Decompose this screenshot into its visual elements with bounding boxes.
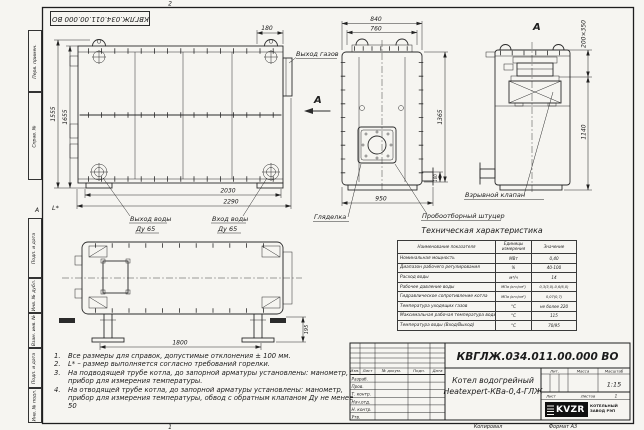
sheets-label: Листов: [580, 394, 596, 399]
sight-glass-label: Гляделка: [313, 164, 361, 222]
scale-label: Масштаб: [605, 369, 624, 374]
sheet-label: Лист: [545, 394, 557, 399]
spec-header-value: Значение: [532, 241, 577, 254]
dim-1365: 1365: [437, 109, 444, 124]
dim-height-inner: 1655: [62, 109, 69, 124]
lit-label: Лит.: [549, 369, 559, 374]
lifting-lug: [93, 40, 278, 47]
dim-180: 180: [261, 25, 273, 32]
zone-mark-top: 2: [168, 1, 172, 8]
dim-2290: 2290: [223, 199, 238, 206]
burner-plate: [358, 127, 396, 163]
spec-row: Номинальная мощностьМВт0,40: [398, 254, 577, 264]
spec-table: Наименование показателя Единицы измерени…: [397, 240, 577, 331]
view-arrow-letter: А: [313, 95, 322, 106]
dim-2030: 2030: [220, 188, 235, 195]
svg-text:Ду 65: Ду 65: [217, 225, 237, 233]
doc-number: КВГЛЖ.034.011.00.000 ВО: [457, 351, 619, 363]
explosion-valve-label: Взрывной клапан: [464, 92, 553, 200]
logo-text: KVZR: [556, 405, 585, 415]
notes: 1.Все размеры для справок, допустимые от…: [54, 352, 354, 411]
kvzr-logo: KVZR: [545, 402, 588, 417]
zone-mark-bottom: 1: [168, 424, 172, 430]
spec-table-title: Техническая характеристика: [397, 226, 567, 235]
margin-stamp-vzam-inv: Взам. инв. №: [28, 313, 42, 348]
role-nkontr: Н. контр.: [352, 407, 372, 412]
dim-200x350: 200×350: [581, 20, 588, 48]
corner-gussets: [89, 246, 280, 308]
margin-stamp-podp-data-2: Подп. и дата: [28, 348, 42, 388]
sampling-stub: [422, 168, 433, 185]
col-list: Лист: [362, 368, 374, 373]
dim-1800: 1800: [172, 340, 187, 347]
plan-view: 1800 195: [59, 242, 310, 350]
explosion-valve: [504, 57, 561, 106]
copied-label: Копировал: [474, 424, 503, 430]
spec-row: Расход водым³/ч14: [398, 273, 577, 283]
drawing-sheet: 2 1 А: [0, 0, 644, 430]
col-docnum: № докум.: [381, 368, 401, 373]
svg-text:Вход воды: Вход воды: [212, 215, 248, 223]
spec-row: Максимальная рабочая температура воды°С1…: [398, 311, 577, 321]
corner-doc-number: КВГЛЖ.034.011.00.000 ВО: [50, 11, 150, 26]
dim-195: 195: [304, 325, 310, 335]
product-name-line2: Heatexpert-КВа-0,4-ГЛЖ: [443, 387, 543, 396]
flange-marks: [90, 50, 280, 181]
water-inlet-label: Вход воды Ду 65: [211, 215, 248, 233]
company-line2: ЗАВОД РЭП: [590, 408, 630, 413]
note-item: 3.На подводящей трубе котла, до запорной…: [54, 369, 354, 386]
logo-stripes-icon: [547, 404, 554, 415]
hatch-door: [101, 259, 130, 294]
note-item: 1.Все размеры для справок, допустимые от…: [54, 352, 354, 360]
svg-text:Ду 65: Ду 65: [135, 225, 155, 233]
dim-760: 760: [370, 26, 382, 33]
burner-dim-label: L*: [52, 204, 60, 212]
col-podp: Подп.: [413, 368, 425, 373]
col-data: Дата: [431, 368, 443, 373]
rear-view-letter: А: [532, 22, 541, 33]
dim-100: 100: [433, 174, 438, 182]
spec-header-unit: Единицы измерения: [496, 241, 532, 254]
svg-text:Гляделка: Гляделка: [314, 213, 346, 221]
role-nachotd: Нач.отд.: [352, 399, 371, 404]
margin-stamp-podp-data-1: Подп. и дата: [28, 218, 42, 278]
format-label: Формат А3: [549, 424, 577, 430]
sheets-value: 1: [615, 394, 618, 399]
margin-stamp-inv-podl: Инв. № подл.: [28, 388, 42, 423]
spec-row: Температура уходящих газов°Сне более 220: [398, 301, 577, 311]
rear-pipe-stub: [480, 163, 495, 184]
spec-header-name: Наименование показателя: [398, 241, 496, 254]
company-name: КОТЕЛЬНЫЙ ЗАВОД РЭП: [590, 403, 630, 413]
zone-mark-left: А: [34, 207, 39, 214]
dim-height-outer: 1555: [50, 106, 57, 121]
mass-label: Масса: [577, 369, 590, 374]
svg-text:Выход воды: Выход воды: [130, 215, 171, 223]
spec-row: Температура воды (Вход/Выход)°С70/95: [398, 321, 577, 331]
spec-row: Диапазон рабочего регулирования%40-100: [398, 263, 577, 273]
spec-row: Рабочее давление водыМПа (кгс/см²)0,3(3,…: [398, 282, 577, 292]
dim-950: 950: [375, 196, 387, 203]
margin-stamp-perv-primen: Перв. примен.: [28, 30, 42, 92]
note-item: 2.L* – размер выполняется согласно требо…: [54, 360, 354, 368]
rear-view: А 200×350: [464, 20, 592, 200]
spec-row: Гидравлическое сопротивление котлаМПа (к…: [398, 292, 577, 302]
margin-stamp-inv-dubl: Инв. № дубл.: [28, 278, 42, 313]
role-utv: Утв.: [352, 415, 361, 420]
view-direction-arrow: А: [304, 95, 330, 114]
gas-outlet-stub: [283, 58, 292, 96]
supports: [59, 314, 286, 342]
svg-text:Пробоотборный штуцер: Пробоотборный штуцер: [422, 212, 505, 220]
title-block: Изм. Лист № докум. Подп. Дата Разраб. Пр…: [350, 343, 630, 430]
dim-1140: 1140: [581, 124, 588, 139]
product-name-line1: Котел водогрейный: [452, 376, 534, 385]
margin-stamp-sprav-no: Справ. №: [28, 92, 42, 180]
note-item: 4.На отводящей трубе котла, до запорной …: [54, 386, 354, 411]
svg-text:Взрывной клапан: Взрывной клапан: [465, 191, 525, 199]
water-outlet-label: Выход воды Ду 65: [129, 215, 171, 233]
scale-value: 1:15: [607, 381, 622, 389]
dim-840: 840: [370, 16, 382, 23]
side-view: 1555 1655 180 2030 2290 Выход газов А L*: [50, 25, 339, 233]
role-tkontr: Т. контр.: [352, 392, 371, 397]
gas-outlet-label: Выход газов: [296, 50, 339, 58]
